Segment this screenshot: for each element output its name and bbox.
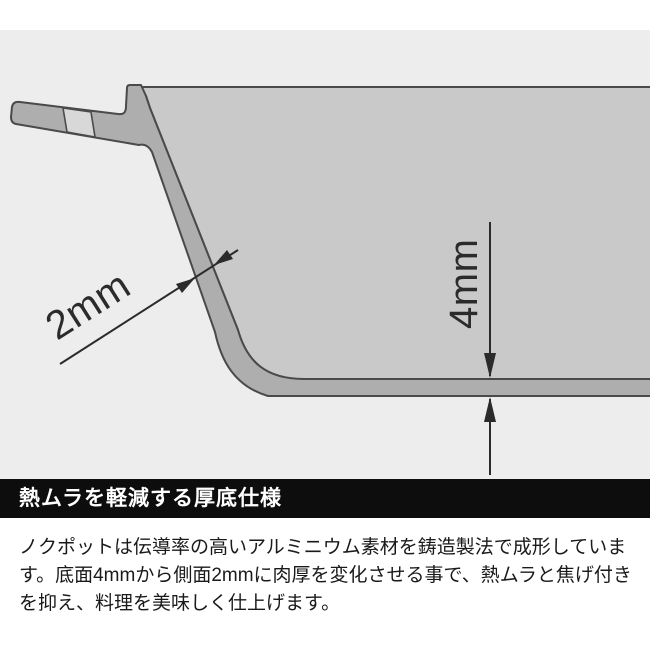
description-line-3: を抑え、料理を美味しく仕上げます。 <box>19 590 635 618</box>
pot-cross-section-diagram: 2mm 4mm <box>0 0 650 479</box>
section-header-bar: 熱ムラを軽減する厚底仕様 <box>0 479 650 518</box>
description-paragraph: ノクポットは伝導率の高いアルミニウム素材を鋳造製法で成形していま す。底面4mm… <box>19 534 635 618</box>
bottom-thickness-label: 4mm <box>442 239 486 329</box>
handle-band <box>63 108 95 137</box>
section-title: 熱ムラを軽減する厚底仕様 <box>0 479 282 518</box>
product-info-image: 2mm 4mm 熱ムラを軽減する厚底仕様 ノクポットは伝導率の高いアルミニウム素… <box>0 0 650 650</box>
description-line-2: す。底面4mmから側面2mmに肉厚を変化させる事で、熱ムラと焦げ付き <box>19 562 635 590</box>
description-line-1: ノクポットは伝導率の高いアルミニウム素材を鋳造製法で成形していま <box>19 534 635 562</box>
